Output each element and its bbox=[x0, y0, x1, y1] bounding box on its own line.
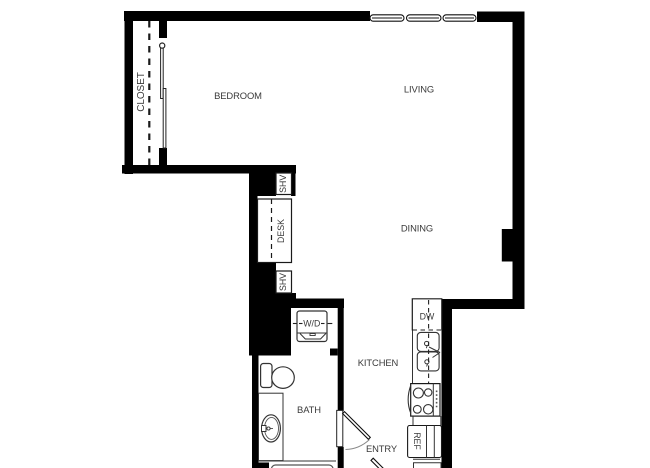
svg-text:SHV: SHV bbox=[278, 273, 288, 291]
svg-text:REF: REF bbox=[412, 432, 422, 450]
svg-text:DINING: DINING bbox=[401, 223, 433, 234]
svg-text:BATH: BATH bbox=[297, 404, 321, 415]
svg-text:SHV: SHV bbox=[278, 175, 288, 193]
svg-text:ENTRY: ENTRY bbox=[366, 443, 398, 454]
svg-text:DESK: DESK bbox=[276, 219, 286, 243]
svg-text:BEDROOM: BEDROOM bbox=[214, 90, 262, 101]
svg-text:W/D: W/D bbox=[303, 318, 320, 328]
svg-text:KITCHEN: KITCHEN bbox=[358, 357, 398, 368]
svg-text:DW: DW bbox=[420, 312, 435, 322]
svg-text:CLOSET: CLOSET bbox=[136, 72, 147, 111]
svg-text:LIVING: LIVING bbox=[404, 84, 434, 95]
